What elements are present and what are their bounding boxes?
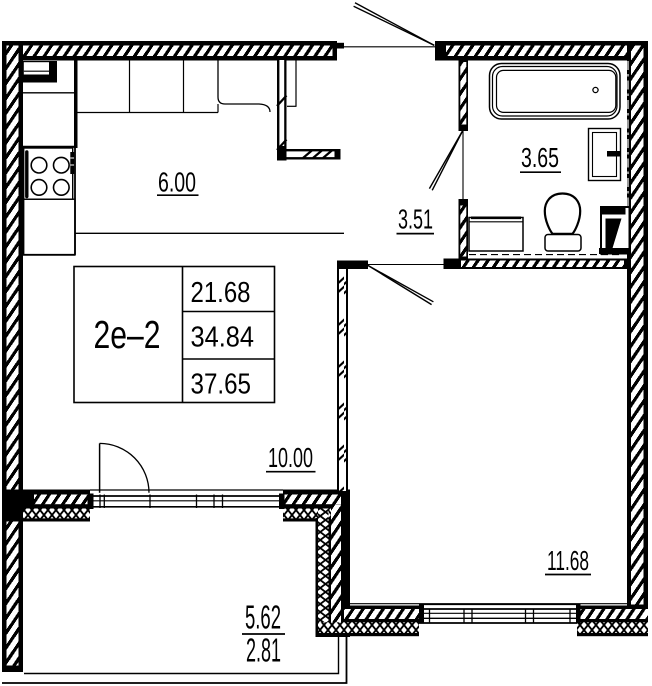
svg-text:3.51: 3.51 [398,203,433,234]
svg-text:3.65: 3.65 [521,142,559,173]
svg-text:11.68: 11.68 [547,545,589,576]
svg-text:34.84: 34.84 [191,321,255,353]
svg-text:2e–2: 2e–2 [94,314,161,357]
svg-text:21.68: 21.68 [191,277,251,309]
svg-text:2.81: 2.81 [246,632,281,669]
svg-text:5.62: 5.62 [245,598,281,635]
svg-text:10.00: 10.00 [268,442,313,473]
svg-text:6.00: 6.00 [158,166,196,197]
svg-text:37.65: 37.65 [191,369,252,401]
